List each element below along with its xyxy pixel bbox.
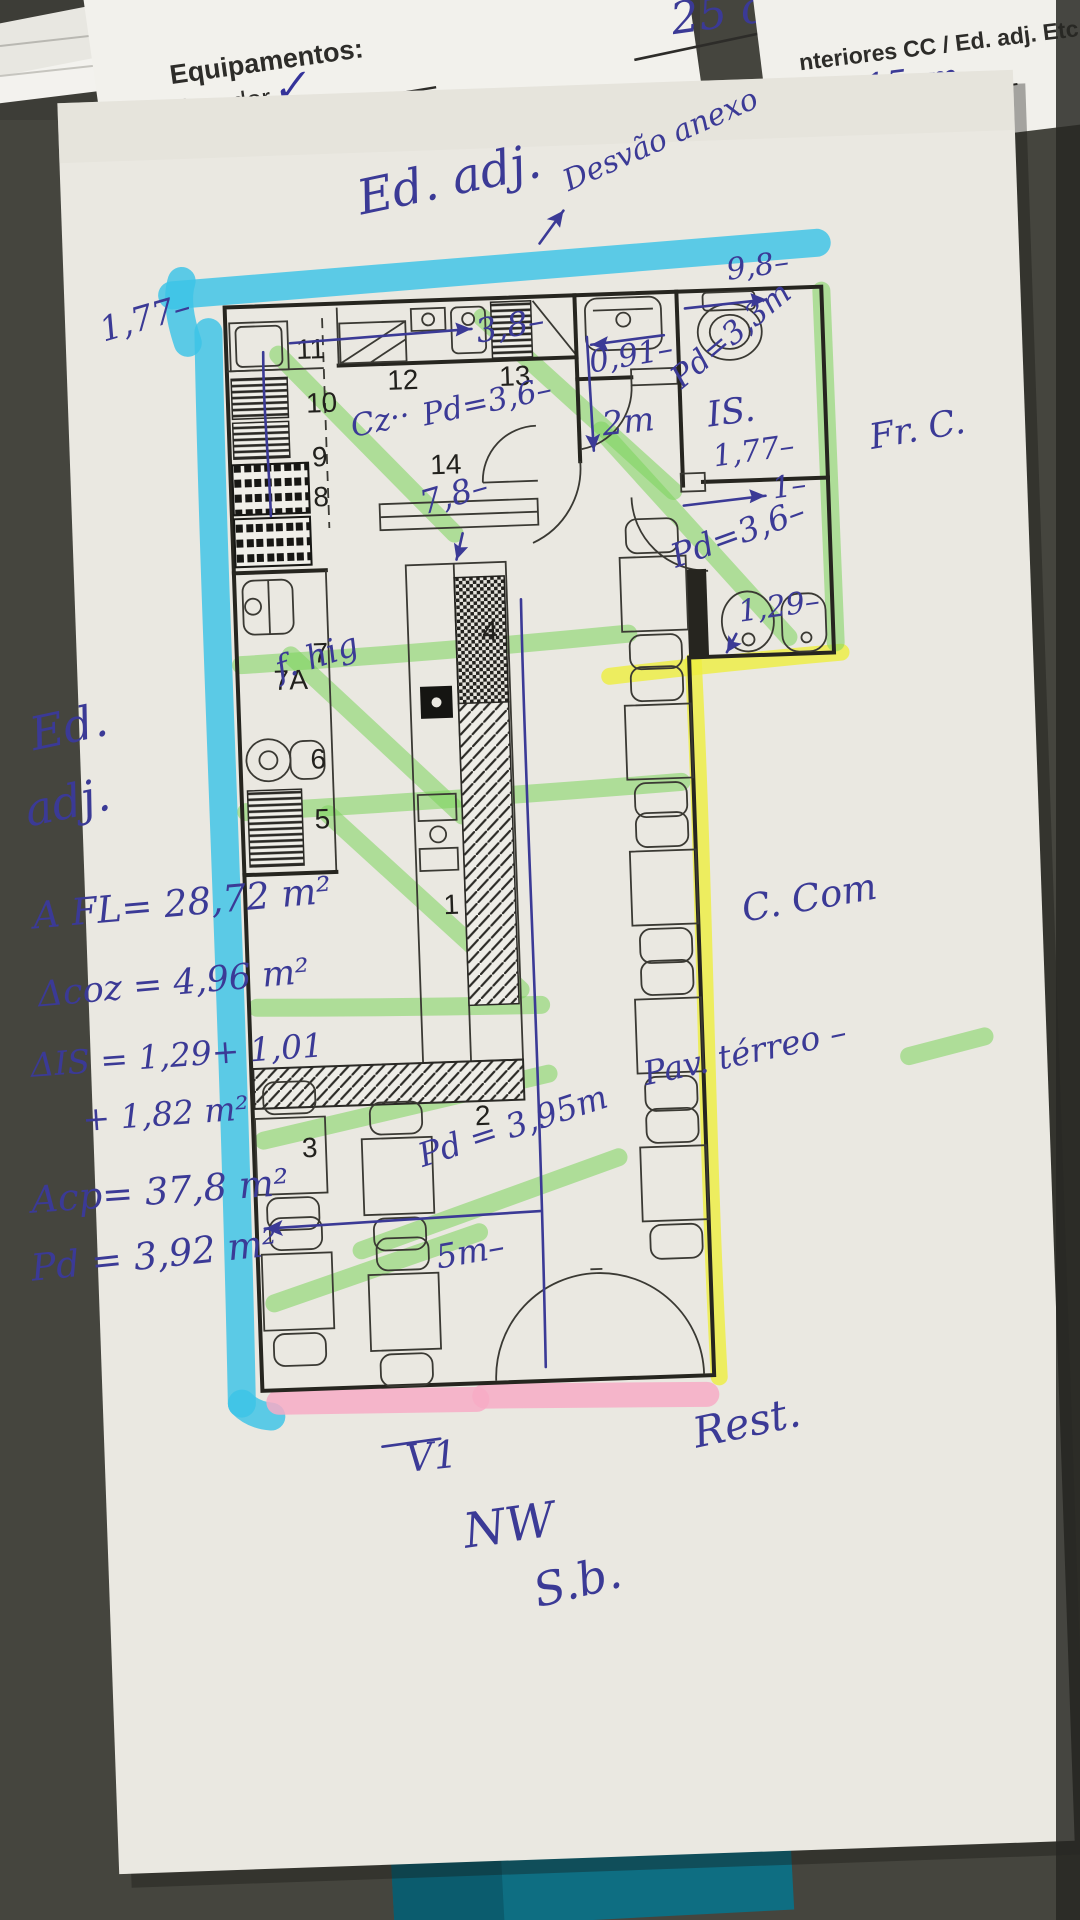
photo-of-floor-plan: Equipamentos: Elevador ✓ Rede de Gá 25 c… [0,0,1080,1920]
room-label-10: 10 [305,387,337,419]
room-label-12: 12 [387,364,419,396]
note-v1: V1 [404,1432,460,1481]
photo-canvas: Equipamentos: Elevador ✓ Rede de Gá 25 c… [0,0,1080,1920]
highlight-pink [279,1387,707,1409]
dim-2m: 2m [599,399,656,443]
main-paper: 11 12 13 10 9 8 14 7 7A 6 5 4 1 2 3 [0,70,1075,1877]
room-label-1: 1 [443,889,460,921]
room-label-6: 6 [310,743,327,775]
room-label-8: 8 [313,481,330,513]
note-is: IS. [704,389,758,435]
room-label-5: 5 [314,803,331,835]
room-label-3: 3 [301,1132,318,1164]
room-label-9: 9 [311,441,328,473]
photo-edge-right [1056,0,1080,1920]
room-label-4: 4 [482,615,499,647]
room-label-11: 11 [296,333,326,365]
